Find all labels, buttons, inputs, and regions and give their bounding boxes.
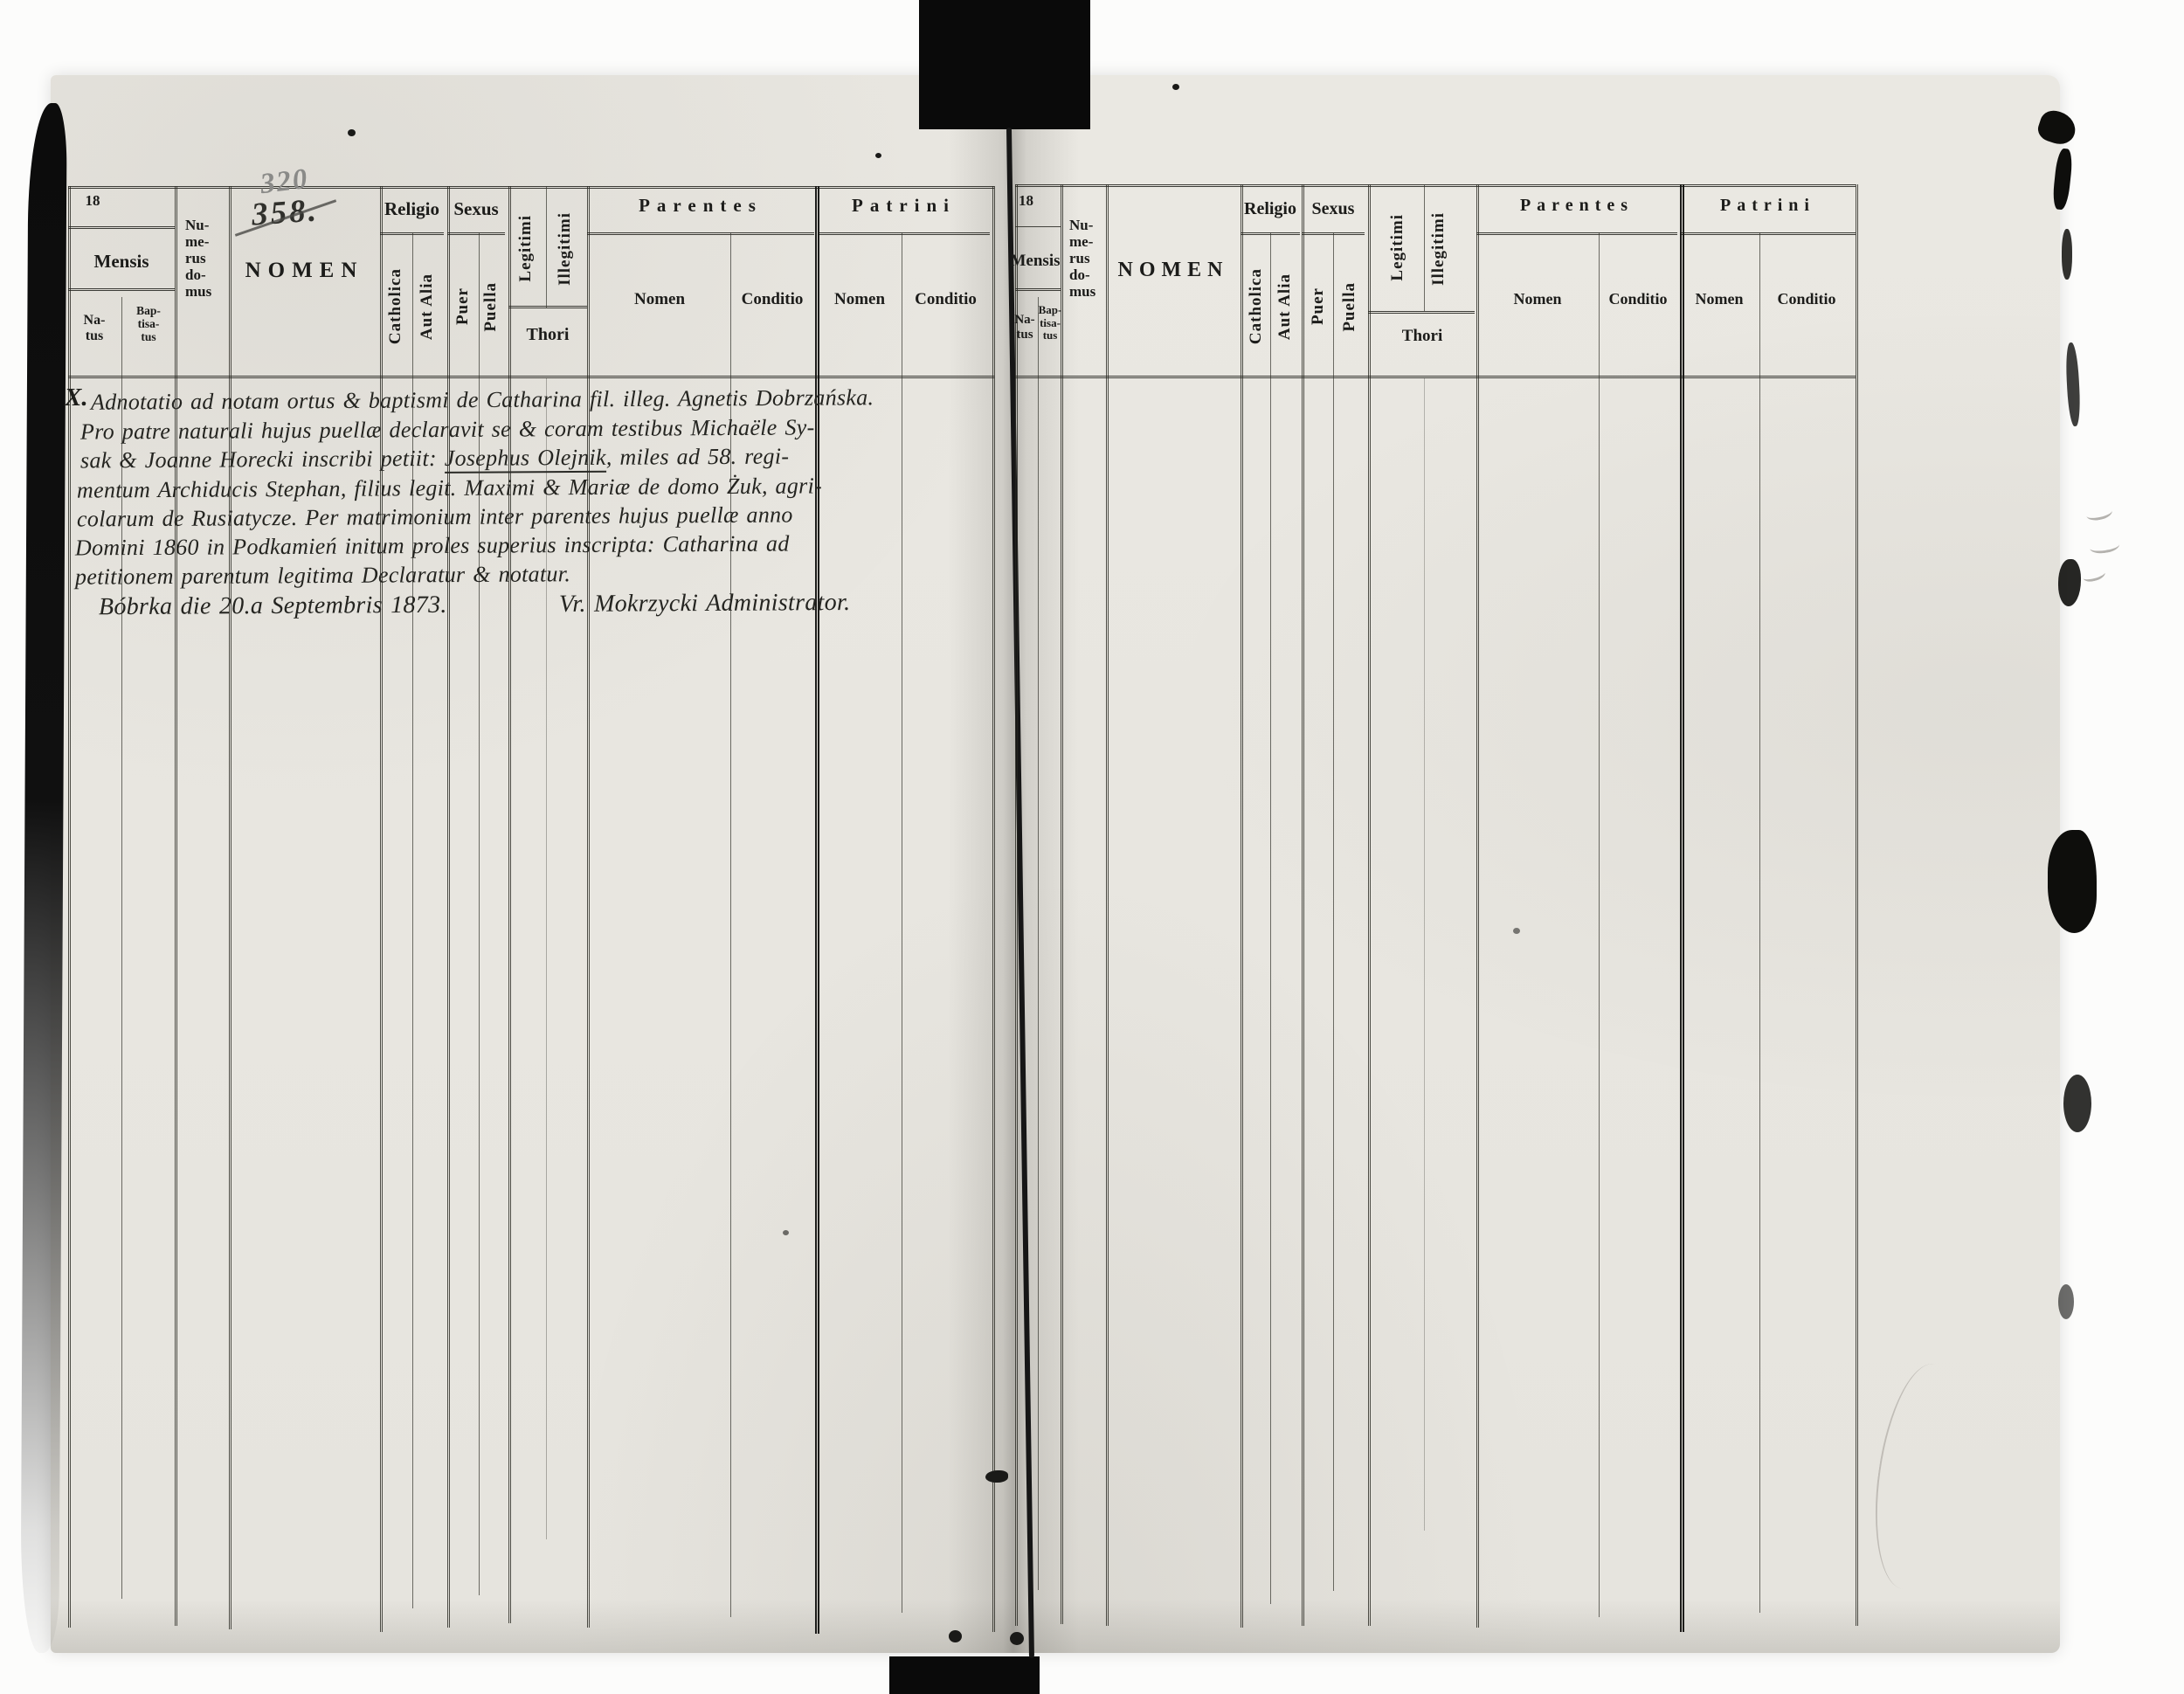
table-rule (1015, 376, 1856, 378)
annotation-line: petitionem parentum legitima Declaratur … (75, 561, 570, 590)
year-prefix-label: 18 (1019, 192, 1054, 209)
column-rule (546, 186, 547, 308)
column-rule (1856, 184, 1858, 1626)
annotation-line: sak & Joanne Horecki inscribi petiit: Jo… (80, 444, 789, 474)
column-rule (1270, 232, 1271, 1604)
ink-speck (1010, 1632, 1024, 1645)
ink-speck (783, 1230, 789, 1235)
annotation-line: Pro patre naturali hujus puellæ declarav… (80, 414, 815, 445)
annotation-line: Domini 1860 in Podkamień initum proles s… (75, 531, 790, 562)
col-header-aut-alia: Aut Alia (1275, 238, 1296, 376)
column-rule (1424, 377, 1425, 1531)
table-rule (447, 232, 505, 235)
table-rule (68, 226, 175, 229)
col-header-sexus: Sexus (1302, 199, 1365, 218)
col-header-patrini: Patrini (1680, 196, 1856, 215)
col-header-mensis: Mensis (68, 252, 175, 273)
col-header-numerus-domus: Nu- me- rus do- mus (1064, 217, 1111, 300)
col-header-puer: Puer (1308, 238, 1329, 376)
spine-strap-top (919, 0, 1090, 129)
col-header-catholica: Catholica (385, 238, 406, 376)
column-rule (1368, 184, 1371, 1626)
col-header-patrini-conditio: Conditio (1761, 290, 1852, 308)
column-rule (1599, 232, 1600, 1617)
table-rule (68, 288, 175, 291)
ink-blot (2058, 559, 2081, 606)
table-rule (1476, 232, 1677, 235)
page-bottom-shadow (51, 1599, 2060, 1653)
column-rule (1241, 184, 1243, 1628)
col-header-nomen: NOMEN (229, 259, 380, 283)
column-rule (1680, 184, 1684, 1632)
col-header-parentes-nomen: Nomen (1485, 290, 1590, 308)
book-left-edge (20, 103, 66, 1653)
col-header-parentes-nomen: Nomen (603, 290, 716, 308)
ink-blot (2063, 1075, 2091, 1132)
column-rule (1038, 297, 1039, 1590)
col-header-sexus: Sexus (447, 199, 505, 220)
year-prefix-label: 18 (75, 192, 110, 209)
col-header-parentes: Parentes (587, 196, 814, 217)
column-rule (1759, 232, 1760, 1613)
col-header-patrini-nomen: Nomen (1682, 290, 1757, 308)
col-header-baptisatus: Bap- tisa- tus (1034, 304, 1066, 342)
spine-strap-bottom (889, 1656, 1040, 1694)
underlined-name: Josephus Olejnik (445, 445, 606, 474)
col-header-religio: Religio (1241, 199, 1300, 218)
ink-blot (2058, 1284, 2074, 1319)
column-rule (1061, 184, 1063, 1624)
table-rule (1015, 226, 1061, 227)
column-rule (1333, 232, 1334, 1591)
col-header-parentes-conditio: Conditio (1600, 290, 1676, 308)
annotation-signature: Vr. Mokrzycki Administrator. (559, 589, 851, 619)
col-header-puella: Puella (1339, 238, 1360, 376)
ink-speck (348, 129, 356, 136)
col-header-patrini-conditio: Conditio (903, 290, 988, 308)
col-header-patrini-nomen: Nomen (819, 290, 900, 308)
col-header-catholica: Catholica (1246, 238, 1267, 376)
annotation-dateline: Bóbrka die 20.a Septembris 1873. (99, 591, 447, 621)
ink-blot (2048, 830, 2097, 933)
col-header-numerus-domus: Nu- me- rus do- mus (178, 217, 234, 300)
table-rule (1680, 232, 1856, 235)
annotation-line: Adnotatio ad notam ortus & baptismi de C… (91, 384, 874, 415)
ink-speck (1513, 928, 1520, 934)
record-mark: X. (65, 384, 88, 412)
col-header-puer: Puer (453, 238, 473, 376)
col-header-illegitimi: Illegitimi (1428, 187, 1449, 311)
column-rule (902, 232, 902, 1613)
col-header-patrini: Patrini (818, 196, 990, 217)
col-header-parentes-conditio: Conditio (732, 290, 812, 308)
col-header-baptisatus: Bap- tisa- tus (128, 304, 169, 343)
column-rule (1015, 184, 1018, 1626)
col-header-natus: Na- tus (77, 313, 112, 344)
col-header-legitimi: Legitimi (515, 190, 536, 306)
col-header-mensis: Mensis (1003, 252, 1068, 270)
col-header-nomen: NOMEN (1106, 259, 1241, 282)
col-header-thori: Thori (510, 325, 585, 344)
col-header-religio: Religio (380, 199, 444, 220)
annotation-line: colarum de Rusiatycze. Per matrimonium i… (77, 501, 793, 532)
table-rule (587, 232, 814, 235)
scanned-baptism-register-spread: 18 Mensis Na- tus Bap- tisa- tus Nu- me-… (0, 0, 2184, 1694)
pencil-scribble (2085, 504, 2113, 522)
col-header-puella: Puella (480, 238, 501, 376)
pencil-scribble (2089, 538, 2120, 556)
ink-speck (949, 1630, 962, 1642)
table-rule (68, 376, 994, 378)
column-rule (992, 186, 995, 1632)
col-header-illegitimi: Illegitimi (555, 189, 576, 309)
column-rule (1476, 184, 1479, 1628)
pencil-scribble (2082, 567, 2106, 584)
torn-edge-mark (2064, 342, 2081, 427)
column-rule (1106, 184, 1109, 1626)
col-header-legitimi: Legitimi (1387, 189, 1408, 307)
col-header-thori: Thori (1379, 327, 1466, 345)
table-rule (1368, 311, 1475, 314)
torn-edge-mark (2062, 229, 2072, 280)
col-header-aut-alia: Aut Alia (417, 238, 438, 376)
column-rule (1424, 184, 1425, 311)
table-rule (818, 232, 990, 235)
table-rule (68, 186, 994, 189)
col-header-parentes: Parentes (1476, 196, 1677, 215)
column-rule (1302, 184, 1304, 1626)
table-rule (1015, 288, 1061, 291)
ink-speck (1172, 84, 1179, 90)
annotation-line: mentum Archiducis Stephan, filius legit.… (77, 473, 822, 503)
ink-speck (875, 153, 881, 158)
ink-speck (985, 1470, 1008, 1483)
